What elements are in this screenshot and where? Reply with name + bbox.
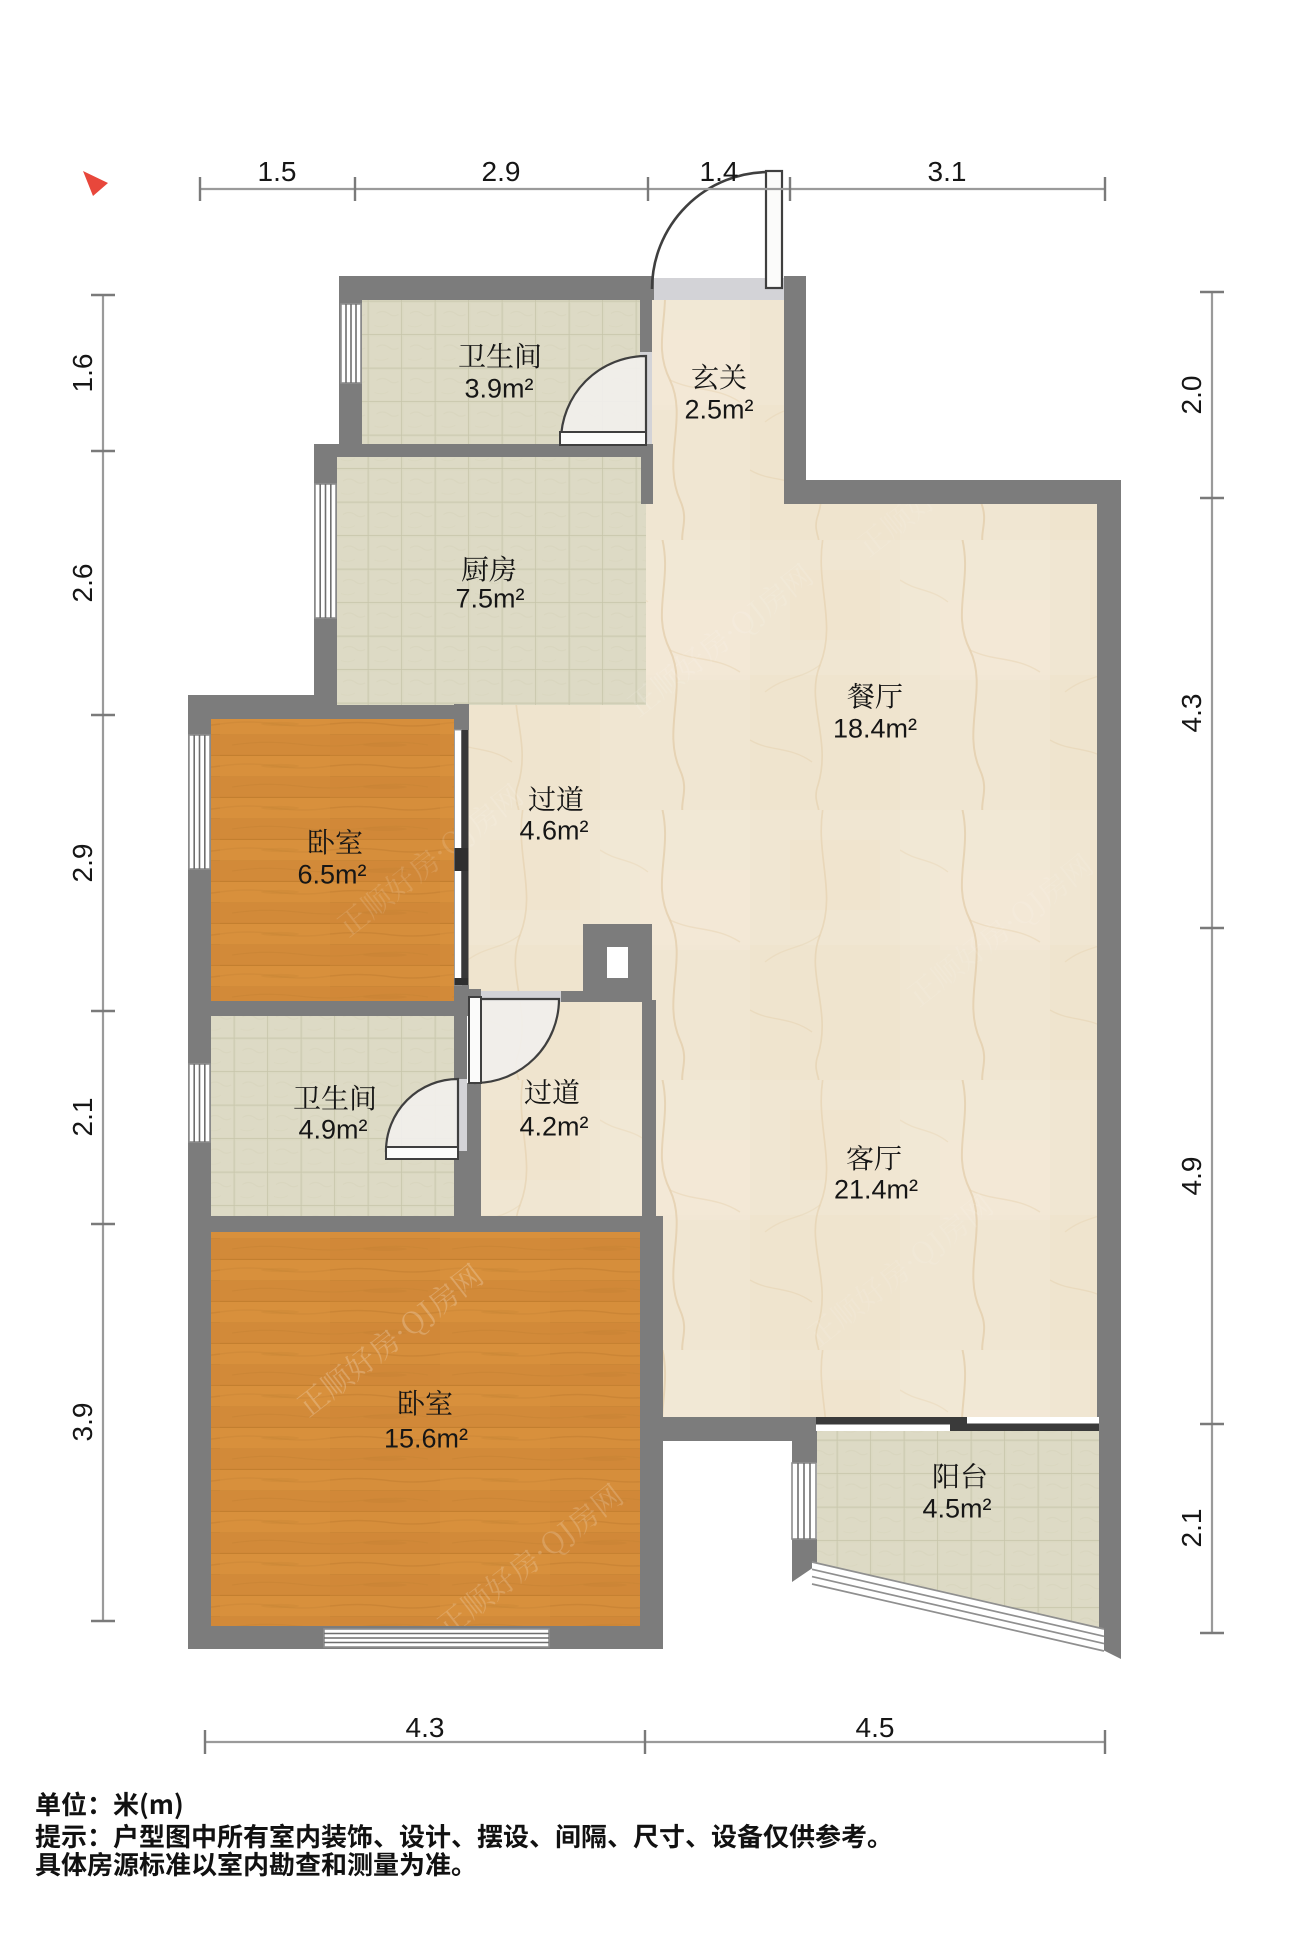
svg-text:4.9: 4.9 xyxy=(1176,1157,1207,1196)
svg-text:4.2m²: 4.2m² xyxy=(519,1112,588,1142)
svg-text:3.9: 3.9 xyxy=(67,1403,98,1442)
svg-text:6.5m²: 6.5m² xyxy=(297,860,366,890)
svg-text:2.6: 2.6 xyxy=(67,564,98,603)
svg-text:4.3: 4.3 xyxy=(406,1712,445,1743)
svg-text:18.4m²: 18.4m² xyxy=(833,714,917,744)
svg-text:7.5m²: 7.5m² xyxy=(455,584,524,614)
svg-text:21.4m²: 21.4m² xyxy=(834,1175,918,1205)
svg-text:4.6m²: 4.6m² xyxy=(519,816,588,846)
svg-text:2.1: 2.1 xyxy=(1176,1509,1207,1548)
svg-text:2.1: 2.1 xyxy=(67,1098,98,1137)
svg-text:4.3: 4.3 xyxy=(1176,694,1207,733)
svg-text:3.1: 3.1 xyxy=(928,156,967,187)
svg-text:1.4: 1.4 xyxy=(700,156,739,187)
svg-text:4.5: 4.5 xyxy=(856,1712,895,1743)
svg-text:3.9m²: 3.9m² xyxy=(464,374,533,404)
svg-text:4.9m²: 4.9m² xyxy=(298,1115,367,1145)
svg-text:4.5m²: 4.5m² xyxy=(922,1494,991,1524)
svg-text:2.9: 2.9 xyxy=(67,844,98,883)
svg-text:2.0: 2.0 xyxy=(1176,376,1207,415)
svg-text:2.5m²: 2.5m² xyxy=(684,395,753,425)
svg-text:15.6m²: 15.6m² xyxy=(384,1424,468,1454)
svg-text:1.5: 1.5 xyxy=(258,156,297,187)
svg-text:1.6: 1.6 xyxy=(67,354,98,393)
svg-text:2.9: 2.9 xyxy=(482,156,521,187)
